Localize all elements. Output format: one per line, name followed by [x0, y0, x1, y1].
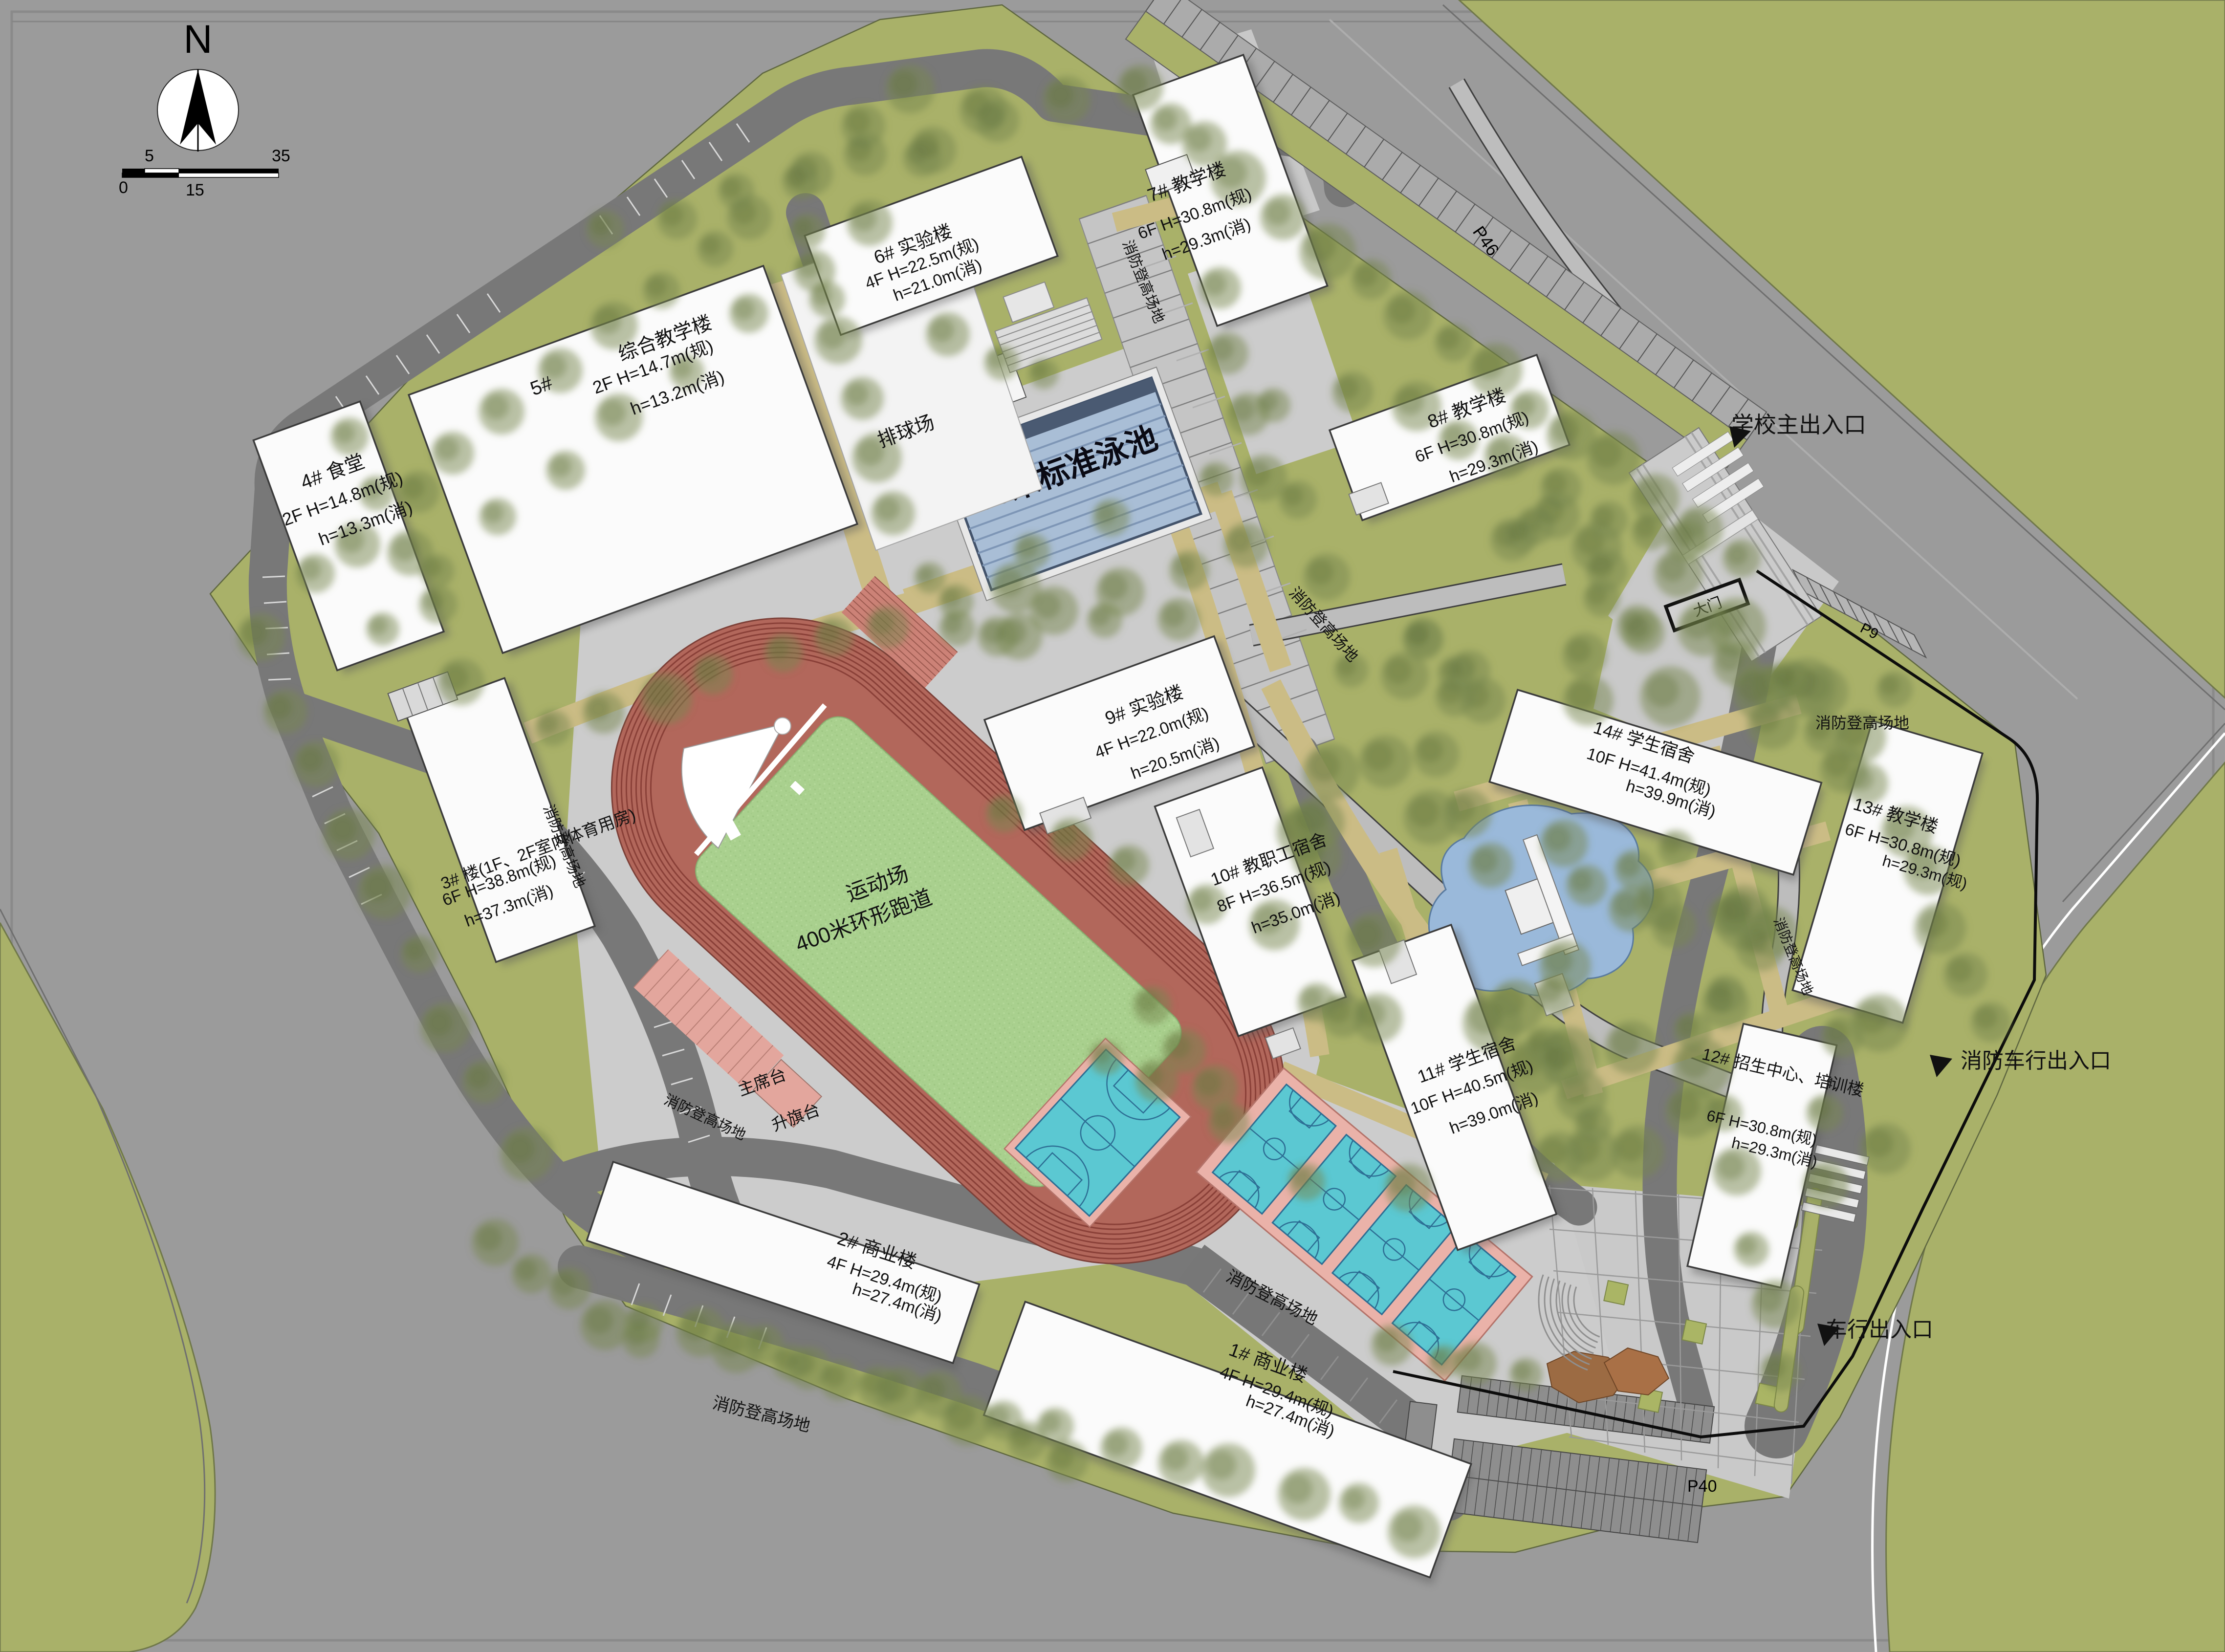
- svg-text:N: N: [183, 17, 212, 62]
- svg-text:35: 35: [272, 147, 290, 165]
- svg-text:消防车行出入口: 消防车行出入口: [1961, 1049, 2111, 1073]
- svg-text:学校主出入口: 学校主出入口: [1731, 412, 1866, 437]
- svg-text:消防登高场地: 消防登高场地: [1815, 714, 1909, 732]
- svg-text:P40: P40: [1687, 1477, 1717, 1496]
- svg-text:5: 5: [145, 147, 154, 165]
- svg-text:15: 15: [186, 181, 204, 199]
- svg-text:车行出入口: 车行出入口: [1826, 1318, 1933, 1342]
- svg-text:0: 0: [119, 178, 128, 197]
